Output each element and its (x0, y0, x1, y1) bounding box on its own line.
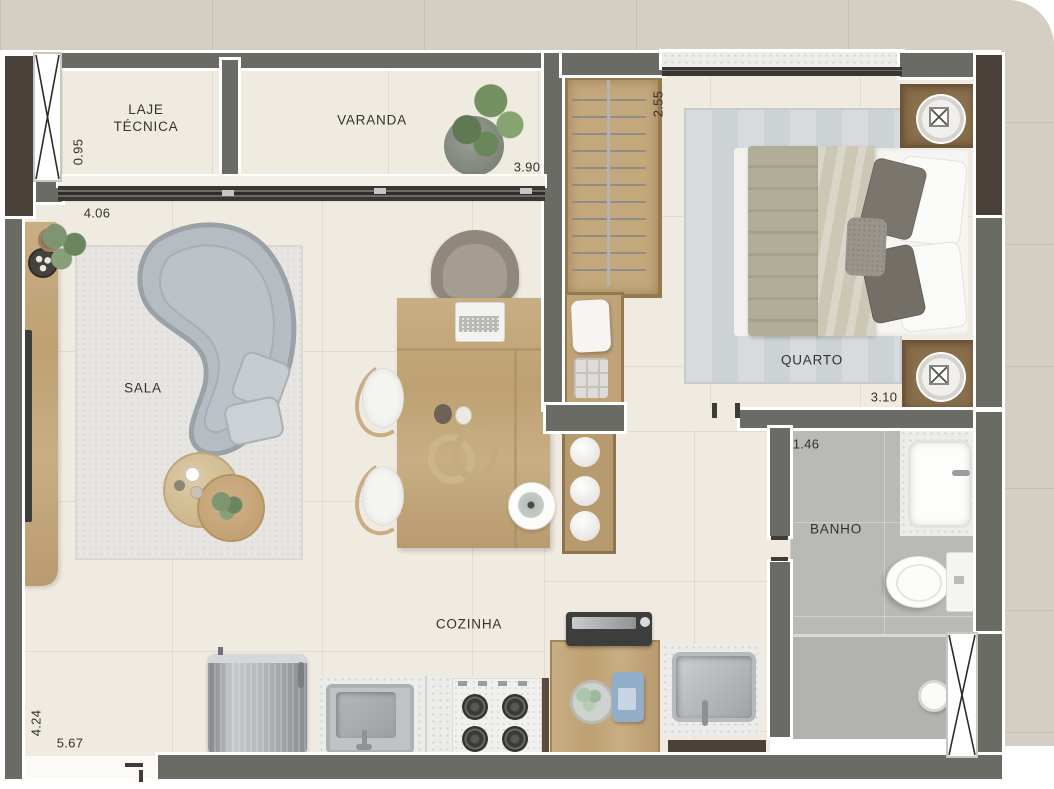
washbasin (908, 440, 972, 528)
shelf-bowl-2 (570, 476, 600, 506)
counter-seam (425, 676, 427, 756)
varanda-plant (438, 72, 534, 168)
table-seam-h (397, 348, 550, 351)
wall-hall-vertical (544, 53, 562, 409)
quarto-doorframe-right (735, 403, 740, 418)
wall-left (5, 216, 22, 779)
room-label-cozinha: COZINHA (436, 617, 502, 634)
dimension-closet-height: 2.55 (651, 91, 666, 118)
refrigerator (208, 654, 307, 754)
plant-coffee-table (208, 488, 246, 522)
wall-laje-varanda-divider (222, 60, 238, 182)
facade-right (1001, 0, 1054, 746)
wall-right-of-window (978, 634, 1002, 756)
dimension-quarto-width: 3.10 (871, 390, 898, 405)
wall-top-varanda (56, 53, 546, 68)
basin-faucet (952, 470, 970, 476)
door-handle-1 (222, 190, 234, 196)
refrigerator-top (208, 654, 307, 663)
table-lamp-top (918, 96, 964, 142)
refrigerator-handle (298, 662, 304, 688)
room-label-laje-tecnica: LAJE TÉCNICA (114, 102, 179, 136)
kitchen-faucet-base (356, 744, 372, 750)
tv (24, 330, 32, 522)
wall-banho-left-lower (770, 562, 790, 737)
desk-chair-seat (443, 244, 507, 298)
decor-vase-dark (434, 404, 452, 424)
wall-banho-left-upper (770, 428, 790, 536)
varanda-door-track (58, 186, 545, 201)
laje-window (33, 52, 62, 182)
dimension-banho-width: 1.46 (793, 437, 820, 452)
quarto-door-opening (624, 409, 740, 431)
lamp-detail (929, 107, 949, 127)
burner-3 (462, 726, 488, 752)
floor-plan: LAJE TÉCNICA VARANDA QUARTO SALA BANHO C… (0, 0, 1054, 789)
wall-right-banho (976, 412, 1002, 634)
wall-quarto-bottom (740, 410, 1000, 428)
wall-top-closet (562, 53, 662, 75)
facade-top (0, 0, 1054, 50)
washing-machine-knob (640, 617, 650, 627)
banho-doorframe-bottom (771, 557, 788, 561)
laptop-keyboard (459, 316, 499, 332)
shower-window (946, 632, 978, 758)
burner-2 (502, 694, 528, 720)
coffee-cup-3 (190, 486, 203, 499)
decor-bowl-inner (518, 492, 544, 518)
storage-boxes (574, 358, 608, 398)
dimension-sala-width: 4.06 (84, 206, 111, 221)
room-label-banho: BANHO (810, 522, 862, 539)
entry-doorframe-b (139, 770, 143, 782)
wall-top-right-stub (900, 53, 978, 77)
banho-doorframe-top (771, 536, 788, 540)
dining-chair-1 (362, 368, 404, 428)
washing-machine-panel (572, 617, 636, 629)
closet-rod (607, 80, 610, 286)
quarto-window-track (662, 67, 902, 76)
bench-pillow (571, 299, 612, 353)
decor-vase-white (455, 406, 472, 425)
refrigerator-hinge (218, 647, 223, 655)
entry-doorframe-a (125, 763, 143, 767)
burner-1 (462, 694, 488, 720)
wall-right-quarto (976, 218, 1002, 412)
room-label-varanda: VARANDA (337, 113, 407, 130)
toilet-flush-button (954, 576, 964, 584)
dimension-varanda-width: 3.90 (514, 160, 541, 175)
burner-4 (502, 726, 528, 752)
dining-chair-2 (362, 466, 404, 526)
towels (575, 685, 603, 713)
bed-quilt (748, 146, 820, 336)
varanda-sill (58, 176, 545, 186)
dimension-bottom-width: 5.67 (57, 736, 84, 751)
door-handle-2 (374, 188, 386, 194)
plant-sala (40, 220, 88, 274)
door-handle-3 (520, 188, 532, 194)
bed-cushion-small (845, 217, 888, 277)
lamp-detail (929, 365, 949, 385)
laundry-faucet (702, 700, 708, 726)
dimension-laje-width: 0.95 (71, 139, 86, 166)
wall-bench-bottom (546, 405, 624, 431)
dimension-sala-height: 4.24 (29, 710, 44, 737)
toilet-seat (896, 564, 942, 602)
wall-bottom (158, 755, 1002, 779)
room-label-sala: SALA (124, 381, 162, 398)
headboard-panel (976, 55, 1002, 218)
entry-floor (24, 756, 158, 779)
shaft-column-left (5, 56, 33, 216)
shelf-bowl-3 (570, 511, 600, 541)
shelf-bowl-1 (570, 437, 600, 467)
cooktop-knobs (458, 681, 534, 686)
room-label-quarto: QUARTO (781, 353, 843, 370)
quarto-window-sill (662, 52, 902, 67)
coffee-cup-2 (174, 480, 185, 491)
detergent-label (618, 688, 636, 710)
laundry-sink (672, 652, 756, 722)
quarto-doorframe-left (712, 403, 717, 418)
coffee-cup-1 (184, 466, 201, 483)
table-lamp-bottom (918, 354, 964, 400)
